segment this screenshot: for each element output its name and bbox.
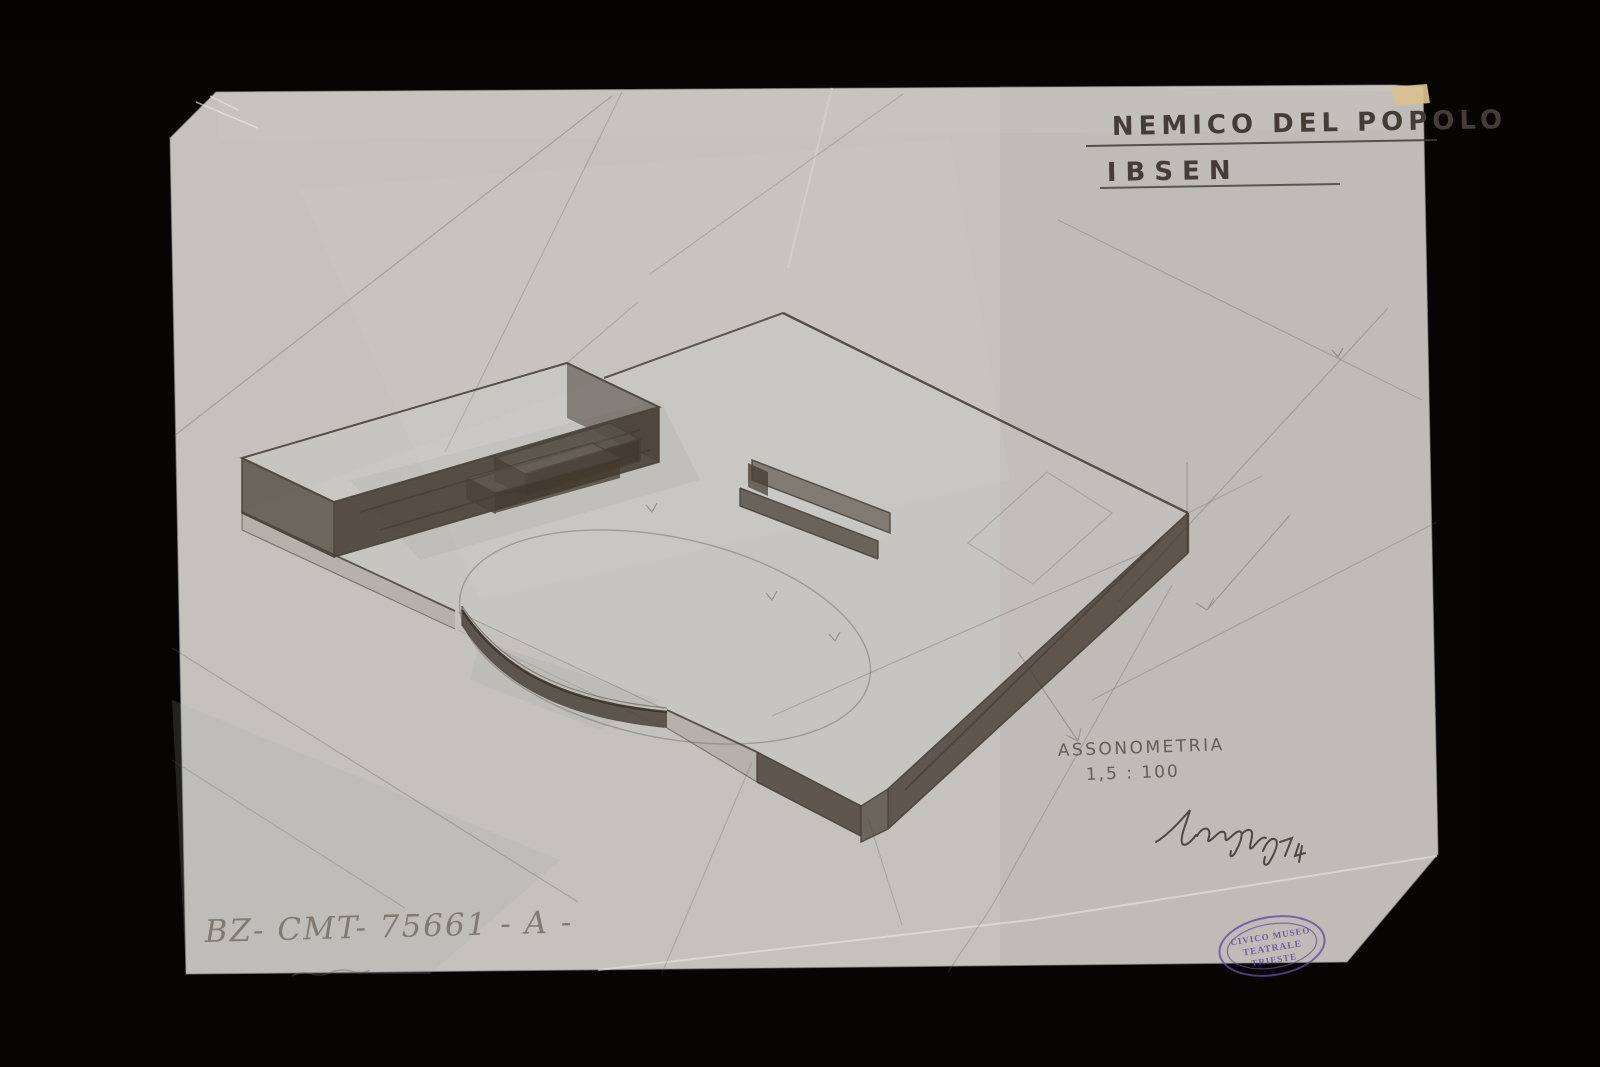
background-vignette-right bbox=[1480, 0, 1600, 1067]
tape-fragment bbox=[1390, 84, 1430, 106]
drawing-canvas: NEMICO DEL POPOLO IBSEN ASSONOMETRIA 1,5… bbox=[0, 0, 1600, 1067]
background-vignette-top bbox=[0, 0, 1600, 40]
scanned-drawing-photo: NEMICO DEL POPOLO IBSEN ASSONOMETRIA 1,5… bbox=[0, 0, 1600, 1067]
annotation-scale-text: 1,5 : 100 bbox=[1085, 762, 1180, 785]
author-text: IBSEN bbox=[1107, 156, 1240, 188]
